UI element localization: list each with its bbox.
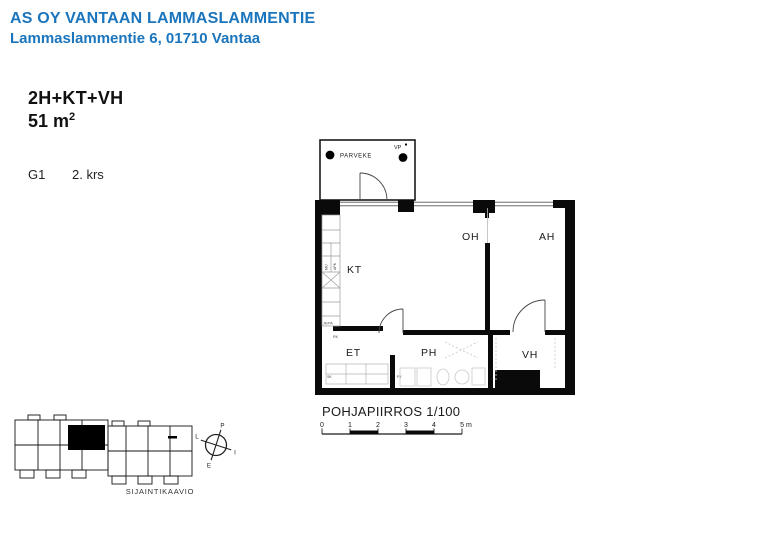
- scale-tick-1: 1: [348, 422, 352, 429]
- compass-icon: P I E L: [195, 423, 236, 470]
- room-label-et: ET: [346, 347, 361, 359]
- scale-tick-4: 4: [432, 422, 436, 429]
- wall-oh-ah: [485, 243, 490, 333]
- site-plan: P I E L SIJAINTIKAAVIO: [8, 412, 240, 502]
- appliance-mu-label: MU: [325, 264, 329, 270]
- compass-south-label: E: [207, 463, 211, 470]
- floorplan-sheet: AS OY VANTAAN LAMMASLAMMENTIE Lammaslamm…: [0, 0, 768, 543]
- highlighted-apartment: [68, 425, 105, 450]
- walls: [315, 200, 575, 395]
- wall-kt-et: [333, 326, 383, 331]
- compass-east-label: I: [234, 450, 236, 457]
- company-title: AS OY VANTAAN LAMMASLAMMENTIE: [10, 10, 315, 28]
- area-superscript: 2: [69, 111, 75, 123]
- room-label-ph: PH: [421, 347, 437, 359]
- door-swings: [379, 300, 545, 333]
- document-header: AS OY VANTAAN LAMMASLAMMENTIE Lammaslamm…: [10, 10, 315, 47]
- appliance-apk-label: APK: [333, 262, 337, 270]
- floor-label: 2. krs: [72, 167, 104, 182]
- entry-closets: [326, 364, 388, 384]
- vp-label: VP: [394, 145, 402, 151]
- wall-et-ph: [390, 355, 395, 388]
- scale-tick-0: 0: [320, 422, 324, 429]
- wall-above-ph: [403, 330, 488, 335]
- apartment-area: 51 m2: [28, 111, 123, 132]
- balcony-outline: PARVEKE VP: [320, 140, 415, 200]
- scale-ticks: [322, 429, 462, 435]
- room-label-oh: OH: [462, 231, 479, 243]
- shaft-block: [495, 370, 540, 388]
- floorplan-drawing: PARVEKE VP: [300, 130, 590, 410]
- closet-sk-label: SK: [327, 375, 332, 379]
- apartment-info: 2H+KT+VH 51 m2: [28, 88, 123, 132]
- street-address: Lammaslammentie 6, 01710 Vantaa: [10, 30, 315, 47]
- siteplan-caption: SIJAINTIKAAVIO: [126, 487, 195, 496]
- scale-bar: 0 1 2 3 4 5 m: [318, 418, 488, 440]
- scale-tick-2: 2: [376, 422, 380, 429]
- room-label-kt: KT: [347, 264, 362, 276]
- room-label-vh: VH: [522, 349, 538, 361]
- compass-west-label: L: [195, 434, 199, 441]
- room-label-ah: AH: [539, 231, 555, 243]
- plan-caption: POHJAPIIRROS 1/100: [322, 404, 460, 419]
- apartment-layout: 2H+KT+VH: [28, 88, 123, 109]
- scale-tick-5: 5 m: [460, 422, 472, 429]
- appliance-jkpa-label: JK/PA: [323, 322, 333, 326]
- compass-north-label: P: [220, 423, 224, 430]
- vh-door-icon: [513, 300, 545, 332]
- unit-row: G1 2. krs: [28, 167, 45, 182]
- scale-tick-3: 3: [404, 422, 408, 429]
- unit-id: G1: [28, 167, 45, 182]
- window-lines: [340, 202, 553, 206]
- site-detail-mark: [168, 436, 177, 439]
- vp-mark-dot: [405, 143, 407, 145]
- area-value: 51 m: [28, 111, 69, 131]
- vp-dot: [399, 153, 408, 162]
- balcony-label: PARVEKE: [340, 154, 372, 160]
- wall-ph-vh: [488, 335, 493, 388]
- balcony-dot: [326, 151, 335, 160]
- appliance-rk-label: RK: [333, 335, 339, 339]
